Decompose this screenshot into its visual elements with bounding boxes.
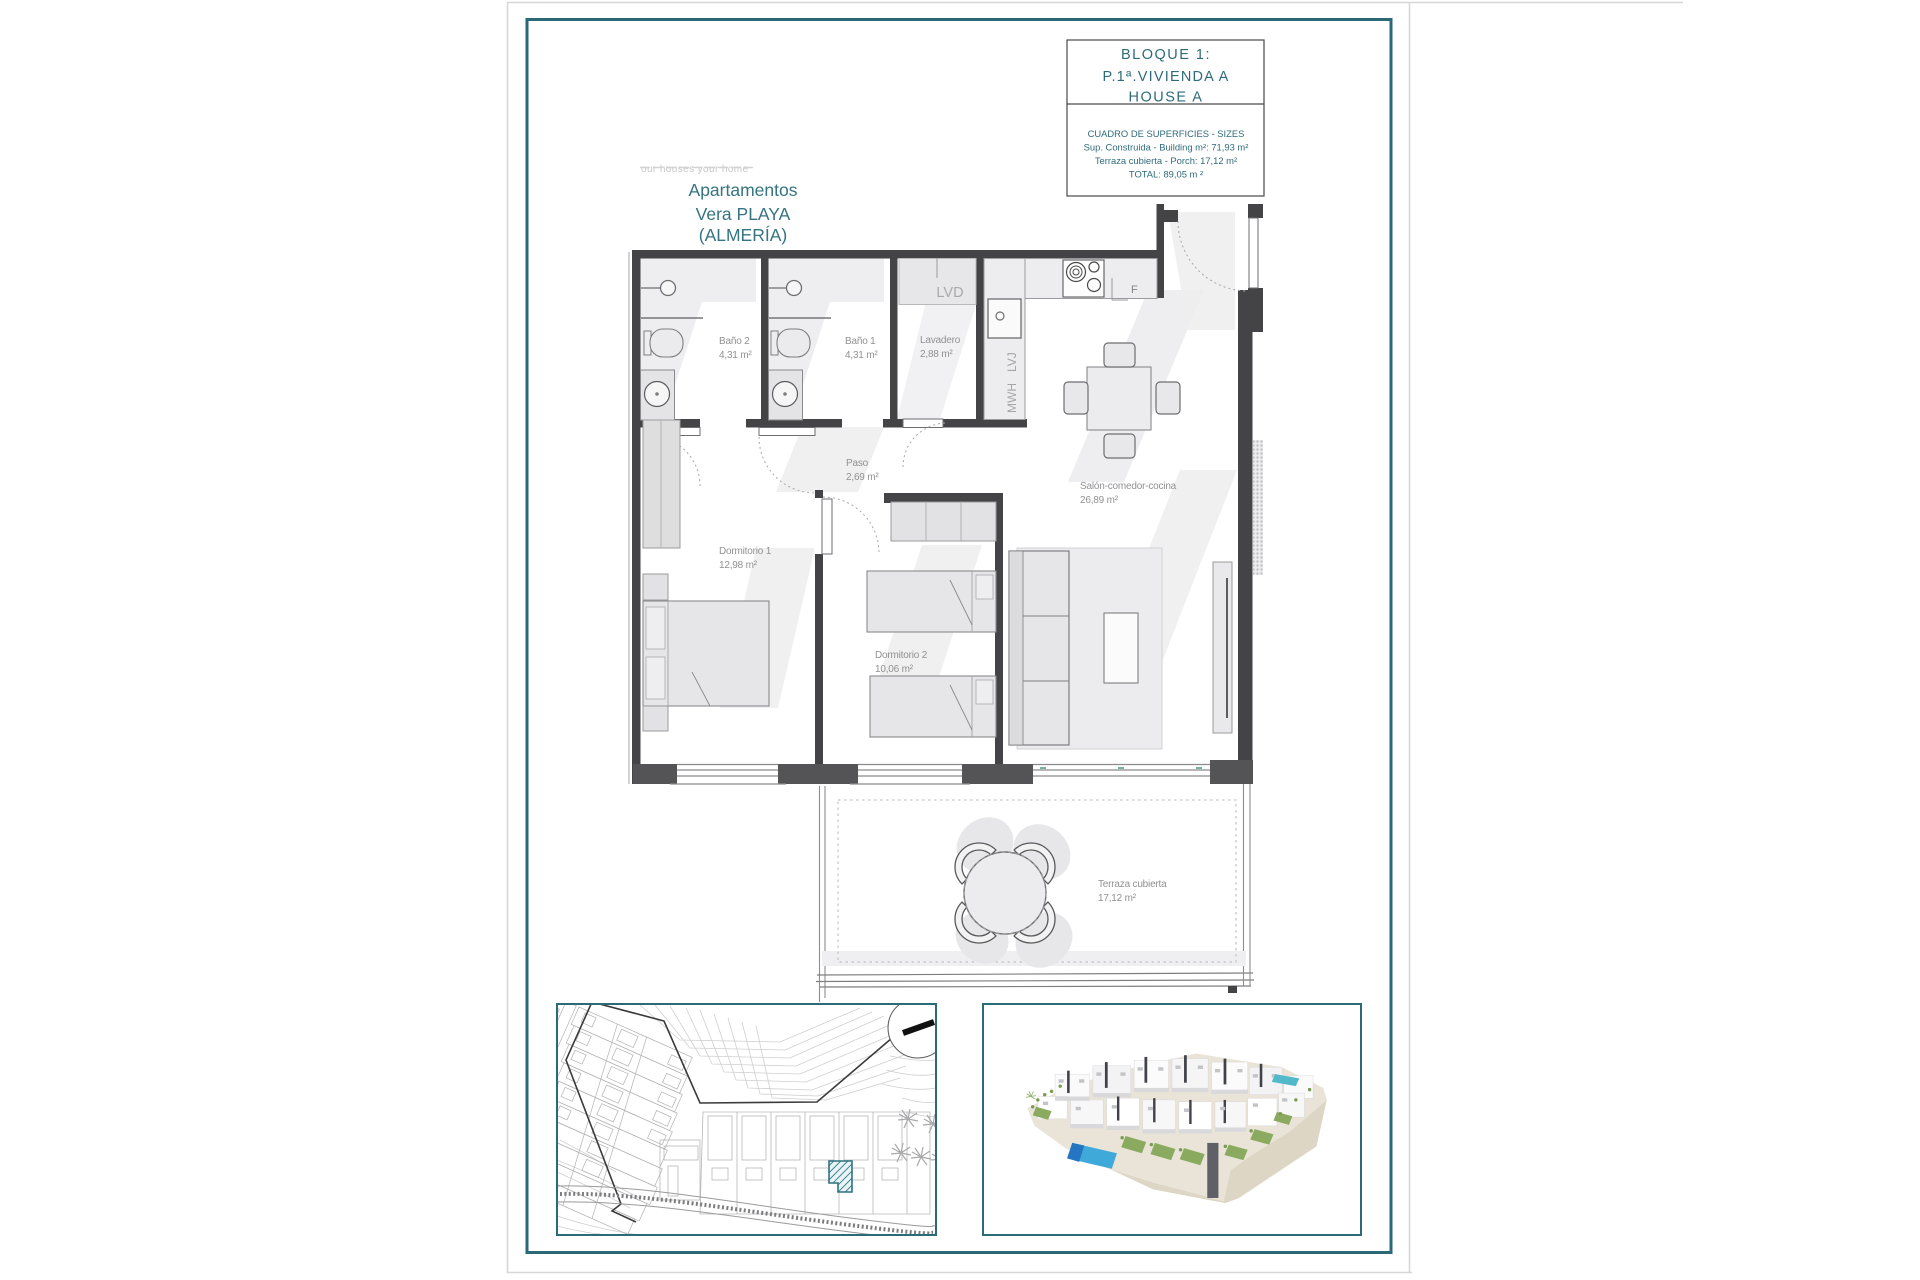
svg-text:2,88 m²: 2,88 m² — [920, 349, 953, 360]
svg-text:HOUSE A: HOUSE A — [1129, 90, 1204, 106]
svg-text:P.1ª.VIVIENDA A: P.1ª.VIVIENDA A — [1102, 69, 1229, 85]
svg-text:12,98 m²: 12,98 m² — [719, 560, 758, 571]
svg-text:LVJ: LVJ — [1005, 352, 1019, 372]
svg-text:Terraza cubierta: Terraza cubierta — [1098, 879, 1167, 890]
svg-text:Apartamentos: Apartamentos — [689, 180, 798, 200]
svg-text:CUADRO DE SUPERFICIES - SIZ: CUADRO DE SUPERFICIES - SIZES — [1088, 128, 1245, 139]
svg-text:4,31 m²: 4,31 m² — [719, 350, 752, 361]
svg-text:Salón-comedor-cocina: Salón-comedor-cocina — [1080, 481, 1177, 492]
svg-text:Dormitorio 2: Dormitorio 2 — [875, 650, 928, 661]
svg-text:Vera PLAYA: Vera PLAYA — [696, 204, 791, 224]
svg-text:Lavadero: Lavadero — [920, 335, 961, 346]
svg-text:Baño 2: Baño 2 — [719, 336, 750, 347]
svg-text:2,69 m²: 2,69 m² — [846, 472, 879, 483]
svg-text:(ALMERÍA): (ALMERÍA) — [699, 225, 787, 245]
svg-text:Terraza cubierta - Porch: 1: Terraza cubierta - Porch: 17,12 m² — [1095, 155, 1237, 166]
svg-text:Paso: Paso — [846, 458, 869, 469]
svg-text:F: F — [1131, 284, 1138, 296]
svg-text:26,89 m²: 26,89 m² — [1080, 495, 1119, 506]
svg-text:Baño 1: Baño 1 — [845, 336, 876, 347]
svg-text:our houses your home: our houses your home — [641, 164, 749, 175]
svg-text:MWH: MWH — [1005, 383, 1019, 413]
svg-text:TOTAL: 89,05 m ²: TOTAL: 89,05 m ² — [1129, 169, 1203, 180]
svg-text:4,31 m²: 4,31 m² — [845, 350, 878, 361]
svg-text:10,06 m²: 10,06 m² — [875, 664, 914, 675]
svg-text:LVD: LVD — [936, 285, 963, 301]
svg-text:BLOQUE 1:: BLOQUE 1: — [1121, 47, 1211, 63]
svg-text:17,12 m²: 17,12 m² — [1098, 893, 1137, 904]
svg-text:Sup. Construida - Building m: Sup. Construida - Building m²: 71,93 m² — [1084, 142, 1249, 153]
svg-text:Dormitorio 1: Dormitorio 1 — [719, 546, 772, 557]
